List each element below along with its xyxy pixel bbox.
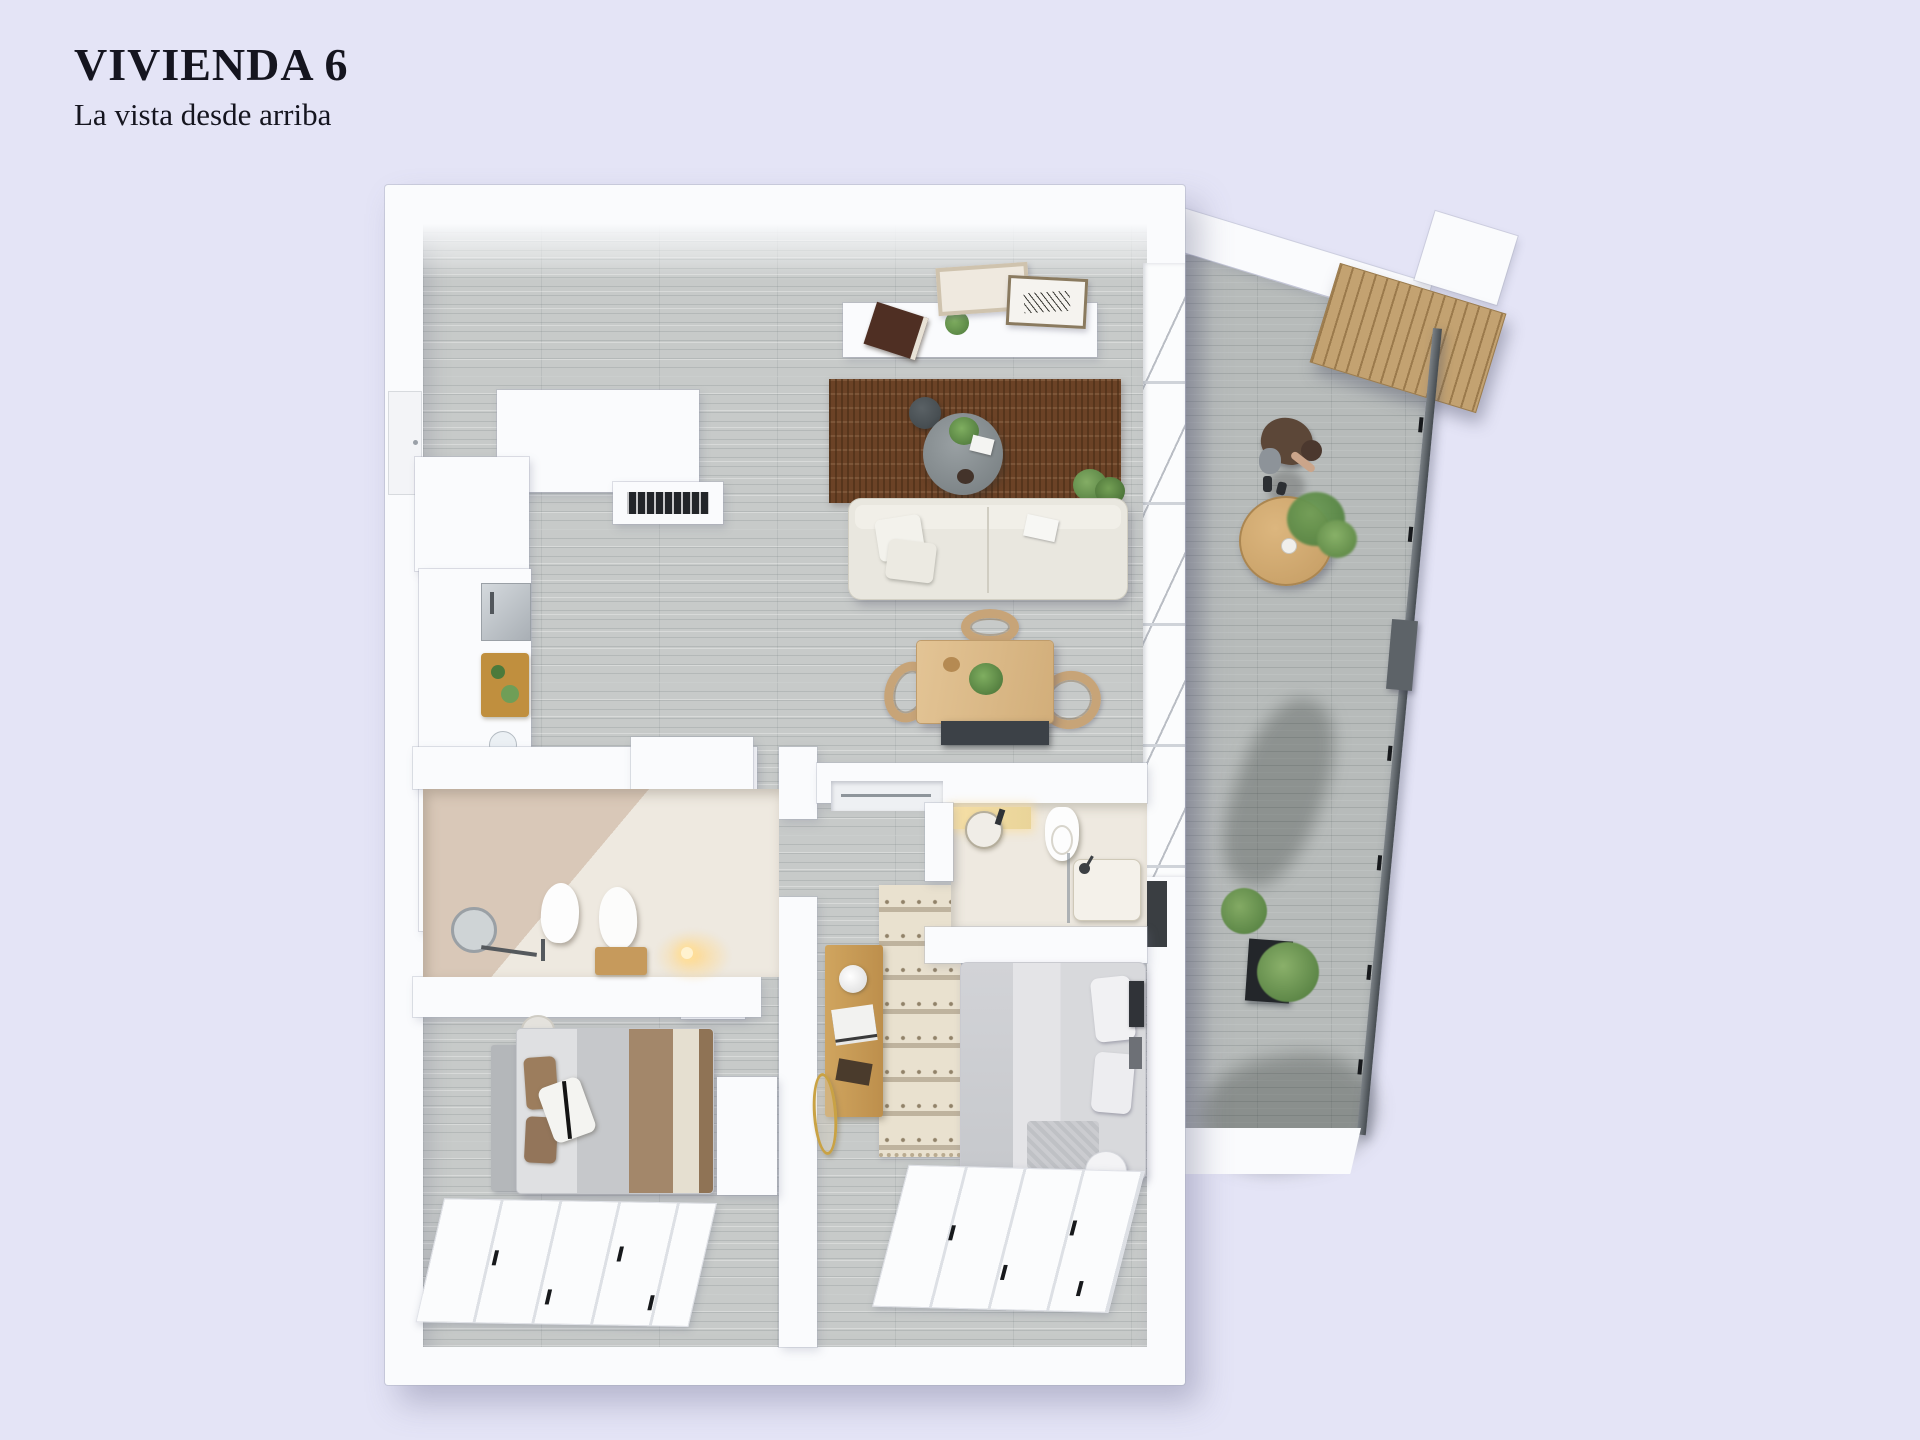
herbs bbox=[491, 665, 505, 679]
door-gap bbox=[1069, 1220, 1077, 1235]
door-gap bbox=[492, 1250, 499, 1265]
tablet bbox=[835, 1058, 872, 1086]
shower-glass bbox=[1067, 853, 1070, 923]
page-title: VIVIENDA 6 bbox=[74, 40, 349, 91]
railing-post bbox=[1377, 855, 1382, 870]
door-gap bbox=[545, 1289, 552, 1304]
leaning-frame bbox=[1129, 981, 1144, 1027]
book-stack bbox=[831, 1004, 877, 1040]
picture-frame bbox=[1006, 275, 1089, 329]
bathroom-2 bbox=[951, 803, 1147, 927]
dining-table bbox=[917, 641, 1053, 723]
page: VIVIENDA 6 La vista desde arriba bbox=[0, 0, 1920, 1440]
bench bbox=[941, 721, 1049, 745]
door-gap bbox=[1000, 1265, 1008, 1280]
cream-blanket bbox=[673, 1029, 699, 1193]
cutting-board bbox=[481, 653, 529, 717]
railing-post bbox=[1366, 965, 1371, 980]
downspout bbox=[1386, 619, 1418, 691]
tall-cabinet bbox=[415, 457, 529, 571]
balcony bbox=[1183, 200, 1455, 1185]
coffee-table bbox=[923, 413, 1003, 495]
toilet bbox=[598, 886, 638, 949]
shower-screen bbox=[539, 882, 580, 944]
magazine bbox=[969, 435, 994, 456]
double-bed bbox=[961, 963, 1145, 1179]
person-shorts bbox=[1259, 448, 1281, 474]
sofa-split bbox=[987, 507, 989, 593]
faucet-set bbox=[481, 945, 537, 957]
balcony-bottom-wall bbox=[1183, 1128, 1361, 1174]
frame-sketch bbox=[1024, 291, 1071, 313]
leaning-frame bbox=[1129, 1037, 1142, 1069]
lamp-glow bbox=[655, 929, 731, 983]
door-handle bbox=[413, 440, 418, 445]
potted-plant bbox=[1317, 520, 1357, 558]
wardrobe-sliding-doors bbox=[1143, 263, 1185, 877]
potted-plant bbox=[1257, 942, 1319, 1002]
bowl bbox=[957, 469, 974, 484]
wood-drawer-box bbox=[595, 947, 647, 975]
sofa bbox=[849, 499, 1127, 599]
vent-grille bbox=[627, 492, 709, 514]
tv-niche bbox=[1147, 881, 1167, 947]
herbs bbox=[501, 685, 519, 703]
door-gap bbox=[617, 1246, 624, 1261]
plant-pot bbox=[1281, 538, 1297, 554]
door-gap bbox=[1076, 1281, 1084, 1296]
desk-lamp bbox=[839, 965, 867, 993]
toilet-bowl bbox=[1051, 825, 1073, 855]
wall bbox=[779, 747, 817, 819]
pillow bbox=[885, 538, 938, 584]
side-cabinet bbox=[717, 1077, 777, 1195]
bathroom-1 bbox=[423, 789, 779, 977]
ceiling-vent bbox=[613, 482, 723, 524]
table-lamp bbox=[681, 947, 693, 959]
railing-post bbox=[1418, 417, 1423, 432]
wall bbox=[413, 977, 761, 1017]
header: VIVIENDA 6 La vista desde arriba bbox=[74, 40, 349, 133]
door-gap bbox=[647, 1295, 654, 1310]
door-gap bbox=[948, 1225, 956, 1240]
railing-post bbox=[1387, 746, 1392, 761]
blanket-edge bbox=[699, 1029, 713, 1193]
dining-chair bbox=[961, 609, 1019, 645]
hanging-rail bbox=[841, 794, 931, 797]
toilet bbox=[1045, 807, 1079, 861]
wood-bowl bbox=[943, 657, 960, 672]
headboard bbox=[491, 1045, 519, 1191]
bistro-table bbox=[1239, 486, 1349, 590]
wall-face bbox=[423, 223, 1147, 281]
wardrobe-sliding-doors bbox=[872, 1165, 1145, 1313]
kitchen-sink bbox=[481, 583, 531, 641]
bedroom-runner-rug bbox=[879, 885, 961, 1157]
wall bbox=[925, 803, 953, 881]
folded-blanket bbox=[961, 963, 1013, 1179]
railing-post bbox=[1357, 1059, 1362, 1074]
faucet bbox=[490, 592, 494, 614]
pillow-band bbox=[562, 1081, 572, 1139]
floor-plan bbox=[385, 185, 1455, 1390]
railing-post bbox=[1408, 527, 1413, 542]
wall-shadow bbox=[1185, 255, 1213, 1130]
page-subtitle: La vista desde arriba bbox=[74, 97, 349, 133]
single-bed bbox=[517, 1029, 713, 1193]
wall bbox=[779, 897, 817, 1347]
wardrobe-sliding-doors bbox=[416, 1198, 717, 1327]
centerpiece-plant bbox=[969, 663, 1003, 695]
brown-blanket bbox=[629, 1029, 673, 1193]
faucet bbox=[541, 939, 545, 961]
potted-plant bbox=[1221, 888, 1267, 934]
wall bbox=[925, 927, 1147, 963]
